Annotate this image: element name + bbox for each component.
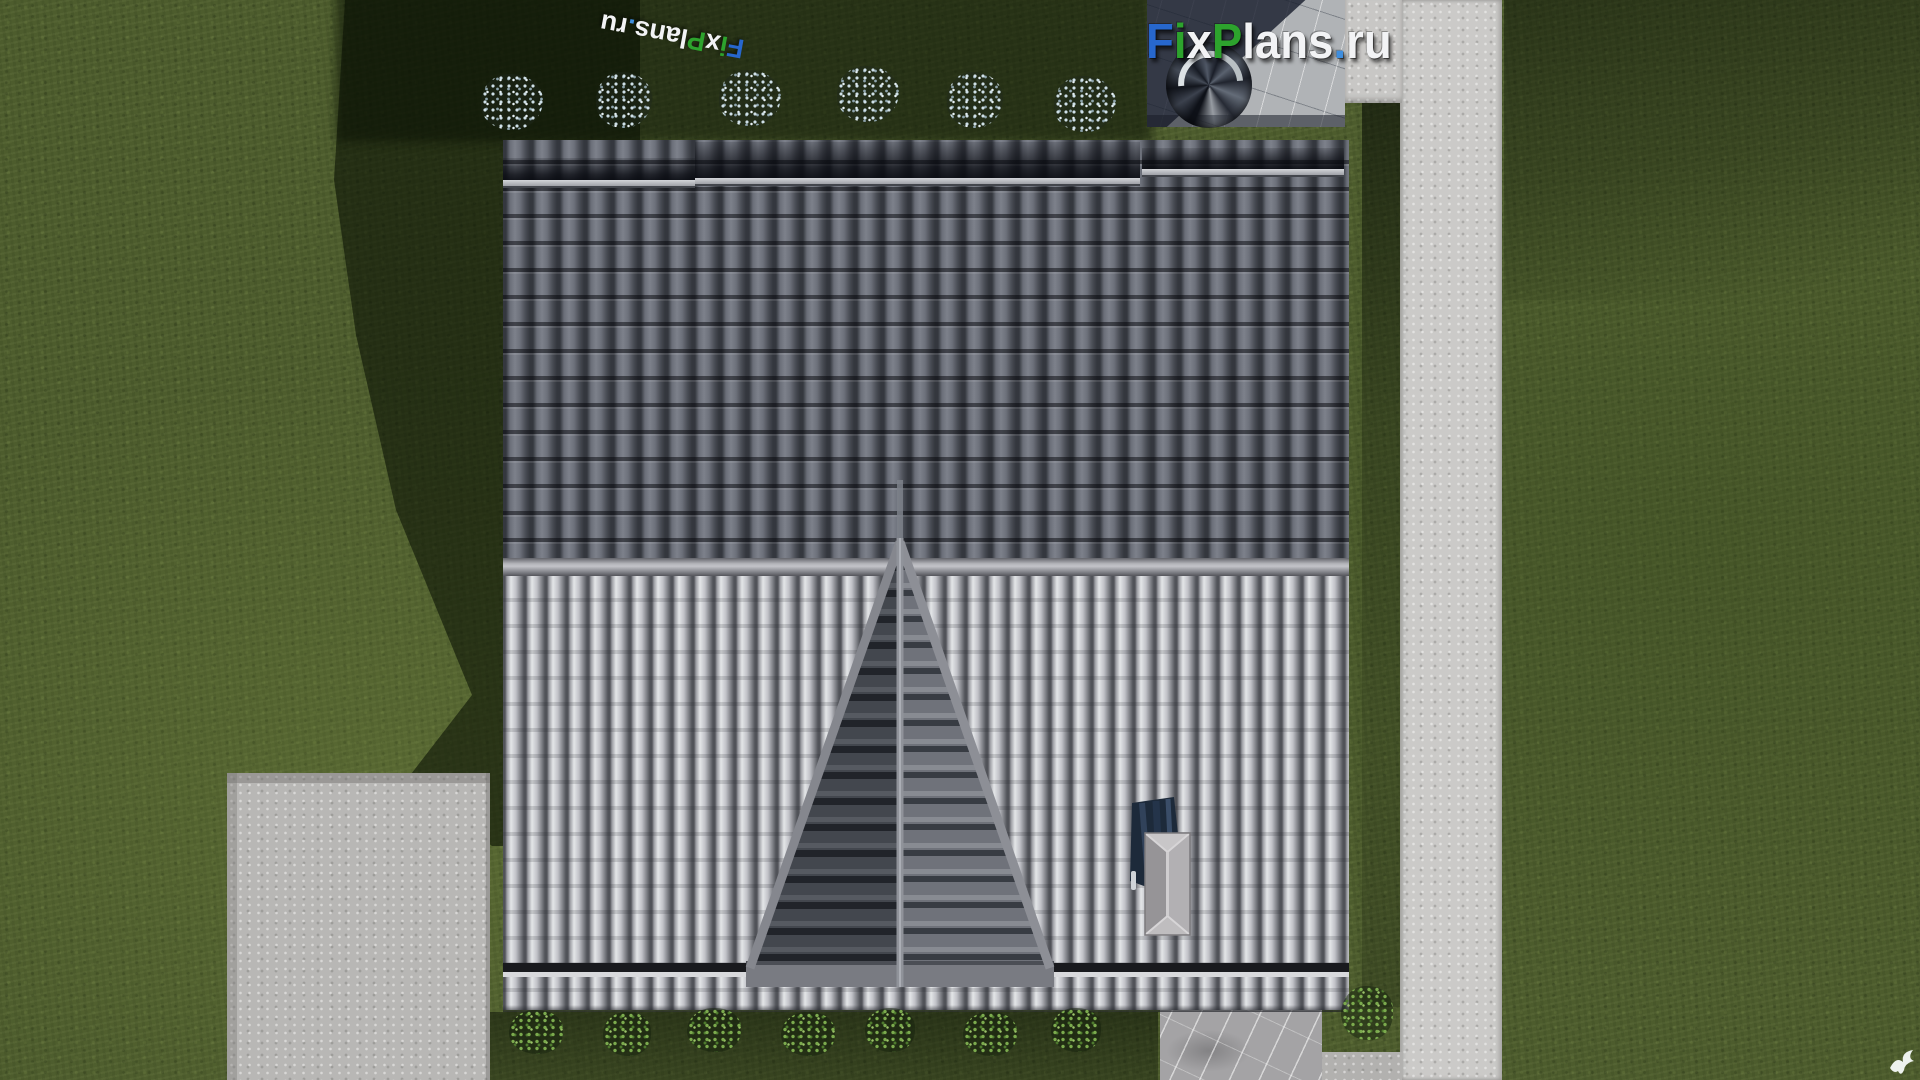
roof-bottom-edge (503, 1005, 1349, 1012)
roof-flashing-right (1142, 169, 1344, 177)
shrub (963, 1012, 1017, 1056)
flower-bush (596, 72, 652, 128)
flower-bush (837, 66, 899, 122)
flower-bush (481, 74, 543, 130)
roof-step-shadow-right (1142, 148, 1344, 169)
gable-triangle-dormer (740, 538, 1060, 988)
shrub (687, 1008, 741, 1052)
render-viewport: FixPlans.ru FixPlans.ru (0, 0, 1920, 1080)
shrub (1341, 986, 1393, 1040)
shrub (1051, 1008, 1101, 1052)
concrete-path-right (1400, 0, 1502, 1080)
concrete-pad-bottom-left (227, 773, 490, 1080)
chimney (1118, 795, 1196, 940)
shrub (509, 1010, 563, 1054)
vent-pipe (1131, 871, 1136, 890)
shadow-top-right-lawn (1504, 0, 1920, 300)
logo-letter-segment: ru (598, 7, 630, 42)
bird-icon (1886, 1048, 1918, 1078)
shrub (603, 1012, 651, 1056)
logo-letter-segment: i (1174, 14, 1187, 70)
shrub (781, 1012, 835, 1056)
logo-letter-segment: lans (632, 14, 691, 54)
roof-section-joint-line (897, 480, 903, 546)
house-roof-plan (490, 127, 1362, 1012)
roof-flashing-middle (695, 178, 1140, 186)
flower-bush (947, 72, 1003, 128)
roof-upper-slope-dark-tiles (503, 140, 1349, 558)
logo-letter-segment: . (1333, 14, 1346, 70)
logo-letter-segment: x (1187, 14, 1212, 70)
roof-step-shadow-left (503, 158, 695, 180)
roof-flashing-left (503, 180, 695, 188)
shaded-grass-right-of-roof (1362, 103, 1400, 1007)
logo-letter-segment: ru (1346, 14, 1392, 70)
fixplans-logo: FixPlans.ru (1146, 12, 1392, 72)
shrub (865, 1008, 915, 1052)
flower-bush (1054, 76, 1116, 132)
logo-letter-segment: lans (1242, 14, 1333, 70)
logo-letter-segment: F (1146, 14, 1174, 70)
roof-step-shadow-middle (695, 142, 1140, 178)
logo-letter-segment: P (1212, 14, 1242, 70)
stone-terrace-bottom-right (1160, 1007, 1322, 1080)
patio-edge (1147, 115, 1345, 127)
